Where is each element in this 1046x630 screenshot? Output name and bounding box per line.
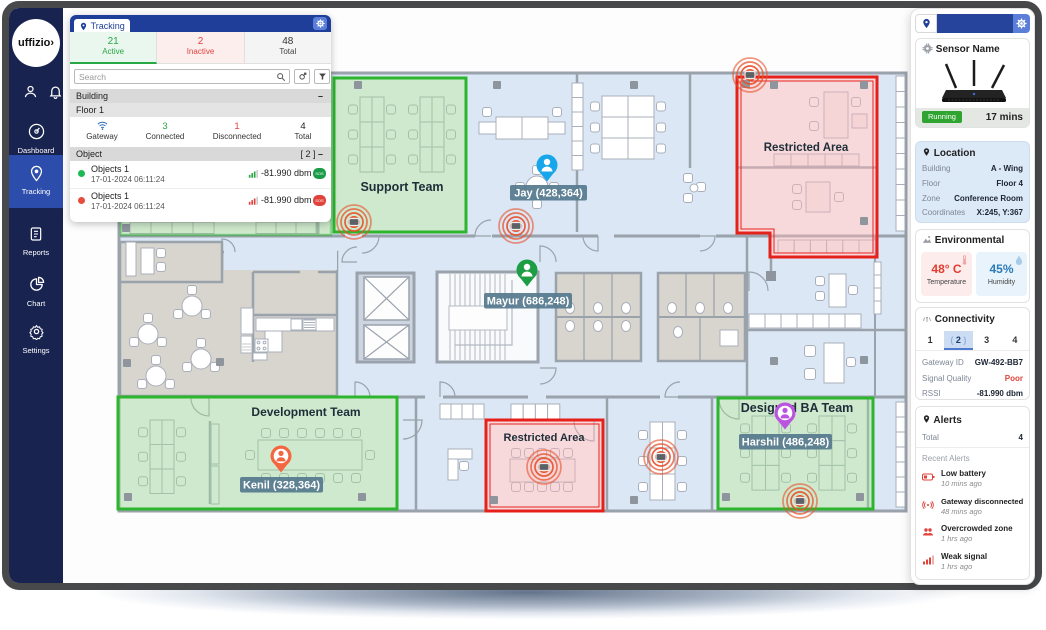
svg-text:Designed BA Team: Designed BA Team [741, 401, 854, 415]
svg-text:Support Team: Support Team [360, 180, 443, 194]
svg-text:Jay (428,364): Jay (428,364) [514, 188, 583, 200]
svg-text:Kenil (328,364): Kenil (328,364) [243, 480, 320, 492]
svg-text:Mayur (686,248): Mayur (686,248) [487, 296, 570, 308]
svg-text:Harshil (486,248): Harshil (486,248) [742, 437, 830, 449]
svg-text:Development Team: Development Team [251, 405, 360, 419]
svg-text:Restricted Area: Restricted Area [504, 432, 586, 444]
svg-text:Restricted Area: Restricted Area [764, 142, 849, 154]
